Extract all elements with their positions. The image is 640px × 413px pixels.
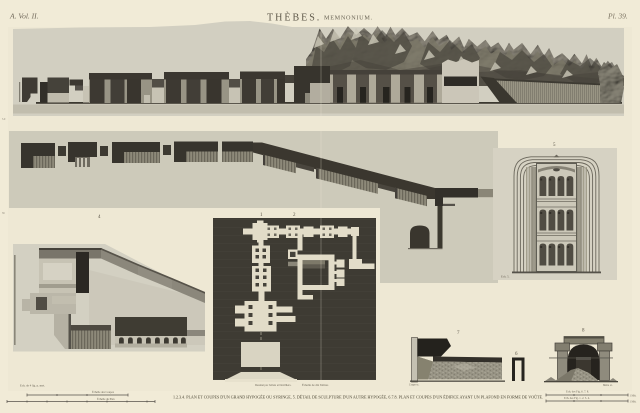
svg-text:Échelle du Plan: Échelle du Plan [97, 398, 115, 401]
svg-text:A. Vol. II.: A. Vol. II. [9, 12, 39, 21]
svg-text:Ech. des Fig. 6. 7. 8.: Ech. des Fig. 6. 7. 8. [566, 391, 589, 394]
svg-text:Échelle des Coupes: Échelle des Coupes [92, 391, 114, 394]
svg-text:1 Mèt.: 1 Mèt. [630, 400, 637, 403]
svg-text:Dessiné par Jollois et Devilli: Dessiné par Jollois et Devilliers. [255, 384, 292, 387]
svg-text:1 Mèt.: 1 Mèt. [630, 394, 637, 397]
svg-text:MEMNONIUM.: MEMNONIUM. [324, 15, 373, 22]
svg-text:THÈBES.: THÈBES. [267, 12, 321, 24]
svg-text:Échelle de dix Mètres: Échelle de dix Mètres [302, 382, 329, 387]
svg-text:Ech. des Fig. 1. 2. 3. 4.: Ech. des Fig. 1. 2. 3. 4. [564, 397, 590, 400]
svg-text:Coupe sc.: Coupe sc. [409, 384, 420, 387]
svg-text:Pl. 39.: Pl. 39. [607, 12, 628, 21]
svg-text:Ech. de 4 lig. p. met.: Ech. de 4 lig. p. met. [20, 384, 45, 388]
svg-text:Mètre sc.: Mètre sc. [603, 384, 613, 387]
svg-text:Ech. 5.: Ech. 5. [501, 275, 510, 279]
